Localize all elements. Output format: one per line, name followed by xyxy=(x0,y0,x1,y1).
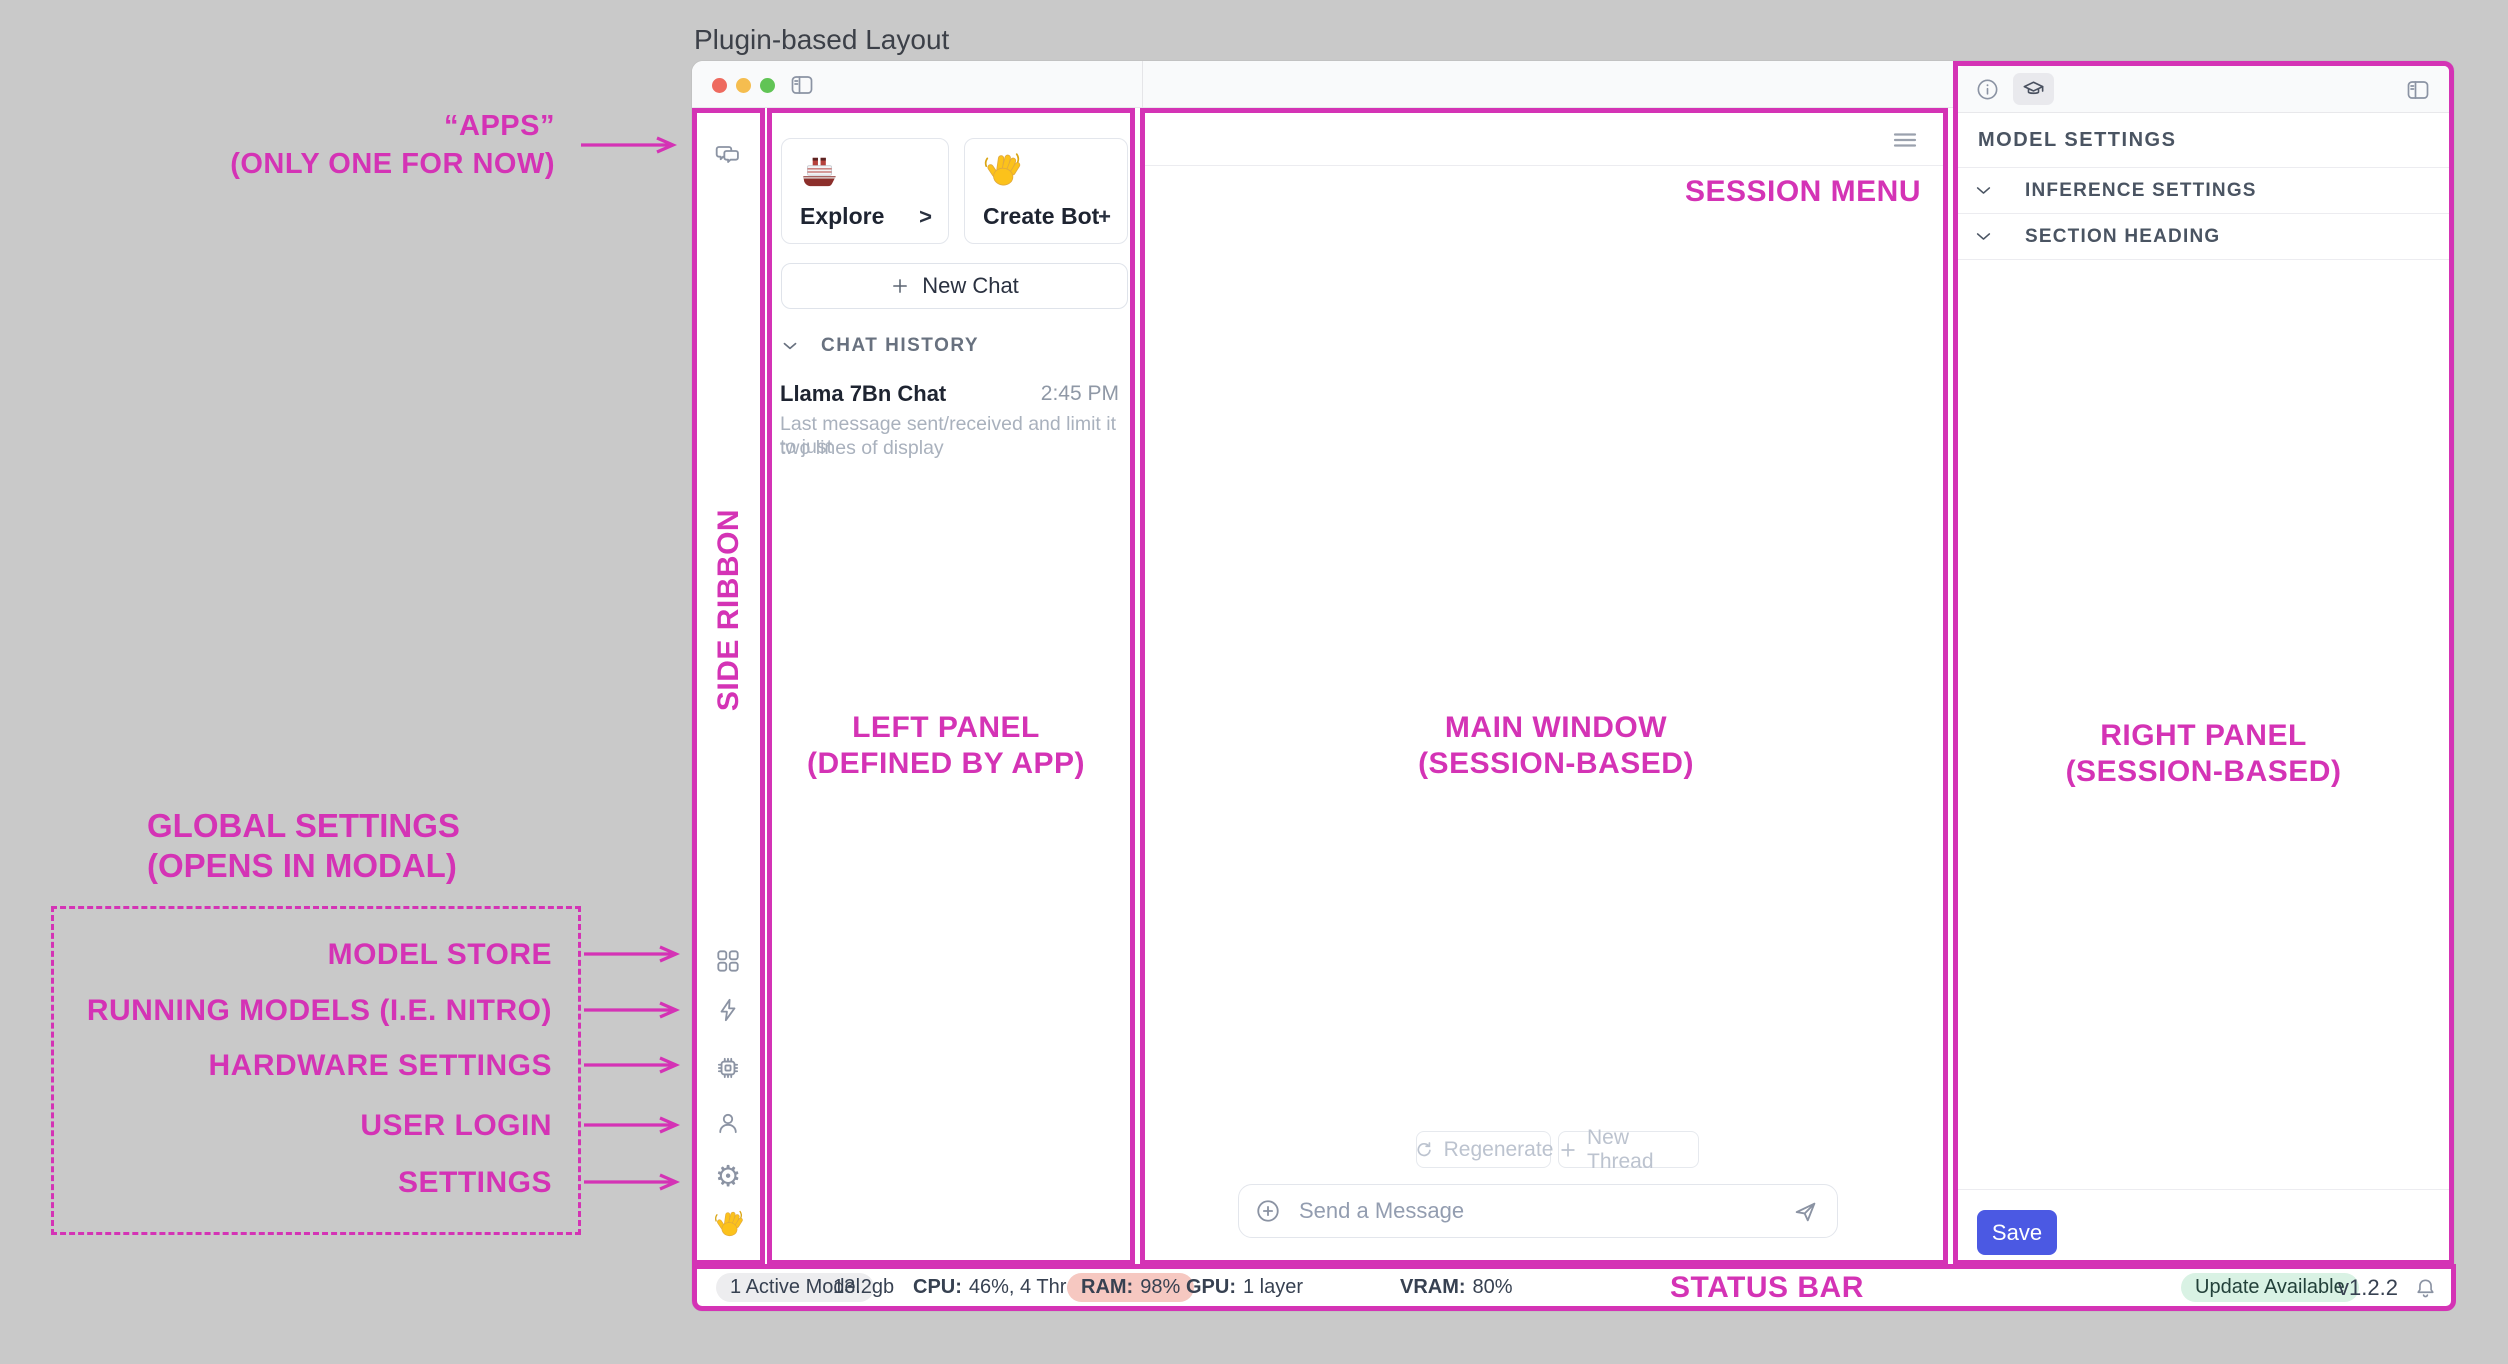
message-input[interactable] xyxy=(1297,1185,1767,1237)
save-button[interactable]: Save xyxy=(1977,1210,2057,1255)
attach-plus-circle-icon[interactable] xyxy=(1255,1198,1281,1224)
settings-gear-icon[interactable]: ⚙ xyxy=(715,1162,741,1191)
session-menu-annotation: SESSION MENU xyxy=(1685,175,1921,209)
send-icon[interactable] xyxy=(1792,1198,1819,1225)
new-thread-label: New Thread xyxy=(1587,1126,1698,1174)
user-login-icon[interactable] xyxy=(714,1109,742,1137)
hardware-settings-arrow xyxy=(584,1056,684,1074)
titlebar-divider xyxy=(1142,61,1143,108)
ram-label: RAM: xyxy=(1081,1276,1133,1299)
settings-annotation: SETTINGS xyxy=(60,1166,552,1200)
user-login-annotation: USER LOGIN xyxy=(60,1109,552,1143)
left-panel: Explore > xyxy=(767,108,1135,1265)
create-bot-card-label: Create Bot xyxy=(983,203,1099,230)
assistant-tab-active[interactable] xyxy=(2013,73,2054,105)
update-available-label: Update Available xyxy=(2181,1273,2359,1302)
main-window-header xyxy=(1145,113,1943,166)
chevron-down-icon xyxy=(1974,227,1993,246)
right-sidebar-toggle-icon[interactable] xyxy=(2405,77,2431,103)
explore-card-chevron[interactable]: > xyxy=(919,204,932,230)
graduation-cap-icon xyxy=(2021,77,2046,102)
section-heading-row[interactable]: SECTION HEADING xyxy=(1958,214,2449,260)
chat-history-label: CHAT HISTORY xyxy=(821,335,979,357)
running-models-arrow xyxy=(584,1001,684,1019)
vram-stat: VRAM: 80% xyxy=(1400,1269,1513,1306)
left-panel-annotation: LEFT PANEL (DEFINED BY APP) xyxy=(807,710,1085,782)
gpu-label: GPU: xyxy=(1186,1276,1236,1299)
hamburger-menu-icon[interactable] xyxy=(1892,127,1918,153)
main-window-panel: SESSION MENU Regenerate New Thread xyxy=(1140,108,1948,1265)
main-window-annotation: MAIN WINDOW (SESSION-BASED) xyxy=(1418,710,1694,782)
refresh-icon xyxy=(1414,1140,1434,1160)
model-store-annotation: MODEL STORE xyxy=(60,938,552,972)
chat-item-time: 2:45 PM xyxy=(1041,382,1119,406)
message-input-container xyxy=(1238,1184,1838,1238)
model-store-grid-icon[interactable] xyxy=(714,947,742,975)
chevron-down-icon xyxy=(781,337,799,355)
chat-item-preview-line2: two lines of display xyxy=(780,437,944,460)
regenerate-button[interactable]: Regenerate xyxy=(1416,1131,1551,1168)
user-login-arrow xyxy=(584,1116,684,1134)
status-bar-annotation: STATUS BAR xyxy=(1670,1269,1864,1306)
traffic-close-button[interactable] xyxy=(712,78,727,93)
hardware-settings-annotation: HARDWARE SETTINGS xyxy=(60,1049,552,1083)
side-ribbon-annotation: SIDE RIBBON xyxy=(712,509,746,711)
design-canvas: Plugin-based Layout xyxy=(0,0,2508,1364)
inference-settings-row[interactable]: INFERENCE SETTINGS xyxy=(1958,168,2449,214)
hardware-chip-icon[interactable] xyxy=(714,1054,742,1082)
info-icon[interactable] xyxy=(1975,77,2000,102)
running-models-annotation: RUNNING MODELS (I.E. NITRO) xyxy=(60,994,552,1028)
right-panel: MODEL SETTINGS INFERENCE SETTINGS SECTIO… xyxy=(1953,61,2454,1265)
version-label: v1.2.2 xyxy=(2338,1269,2398,1306)
update-available-badge[interactable]: Update Available xyxy=(2181,1269,2359,1306)
model-settings-header-row: MODEL SETTINGS xyxy=(1958,113,2449,168)
section-heading-label: SECTION HEADING xyxy=(2025,226,2220,248)
ram-pill: RAM: 98% xyxy=(1067,1273,1194,1302)
ram-value: 98% xyxy=(1140,1276,1180,1299)
vram-label: VRAM: xyxy=(1400,1276,1466,1299)
model-store-arrow xyxy=(584,945,684,963)
create-bot-card-plus[interactable]: + xyxy=(1098,204,1111,230)
create-bot-card[interactable]: Create Bot + xyxy=(964,138,1128,244)
wave-hand-emoji xyxy=(981,151,1023,193)
ship-emoji xyxy=(798,151,840,193)
memory-usage: 13.2gb xyxy=(833,1269,894,1306)
vram-value: 80% xyxy=(1473,1276,1513,1299)
right-panel-annotation: RIGHT PANEL (SESSION-BASED) xyxy=(2066,718,2342,790)
gpu-value: 1 layer xyxy=(1243,1276,1303,1299)
plus-icon xyxy=(1559,1141,1577,1159)
gpu-stat: GPU: 1 layer xyxy=(1186,1269,1303,1306)
apps-annotation: “APPS” (ONLY ONE FOR NOW) xyxy=(210,110,555,181)
settings-arrow xyxy=(584,1173,684,1191)
new-chat-label: New Chat xyxy=(922,273,1019,299)
ram-stat-pill: RAM: 98% xyxy=(1067,1269,1194,1306)
app-window: ⚙ xyxy=(691,60,2455,1312)
traffic-zoom-button[interactable] xyxy=(760,78,775,93)
regenerate-label: Regenerate xyxy=(1444,1138,1554,1162)
wave-hand-icon[interactable] xyxy=(712,1209,745,1242)
chat-item-title: Llama 7Bn Chat xyxy=(780,381,946,407)
new-thread-button[interactable]: New Thread xyxy=(1558,1131,1699,1168)
cpu-label: CPU: xyxy=(913,1276,962,1299)
explore-card[interactable]: Explore > xyxy=(781,138,949,244)
page-title: Plugin-based Layout xyxy=(694,24,949,56)
messages-icon[interactable] xyxy=(714,140,742,168)
explore-card-label: Explore xyxy=(800,203,884,230)
running-models-bolt-icon[interactable] xyxy=(714,996,742,1024)
traffic-minimize-button[interactable] xyxy=(736,78,751,93)
chat-history-header[interactable]: CHAT HISTORY xyxy=(781,335,979,357)
model-settings-label: MODEL SETTINGS xyxy=(1978,129,2176,152)
apps-arrow xyxy=(581,136,681,154)
inference-settings-label: INFERENCE SETTINGS xyxy=(2025,180,2257,202)
left-sidebar-toggle-icon[interactable] xyxy=(789,72,815,98)
chevron-down-icon xyxy=(1974,181,1993,200)
right-panel-footer-divider xyxy=(1958,1189,2449,1190)
new-chat-button[interactable]: New Chat xyxy=(781,263,1128,309)
bell-icon[interactable] xyxy=(2413,1276,2438,1301)
status-bar: 1 Active Model 13.2gb CPU: 46%, 4 Thread… xyxy=(692,1264,2456,1311)
global-settings-annotation: GLOBAL SETTINGS (OPENS IN MODAL) xyxy=(147,806,460,886)
plus-icon xyxy=(890,276,910,296)
right-panel-toolbar xyxy=(1958,66,2449,113)
